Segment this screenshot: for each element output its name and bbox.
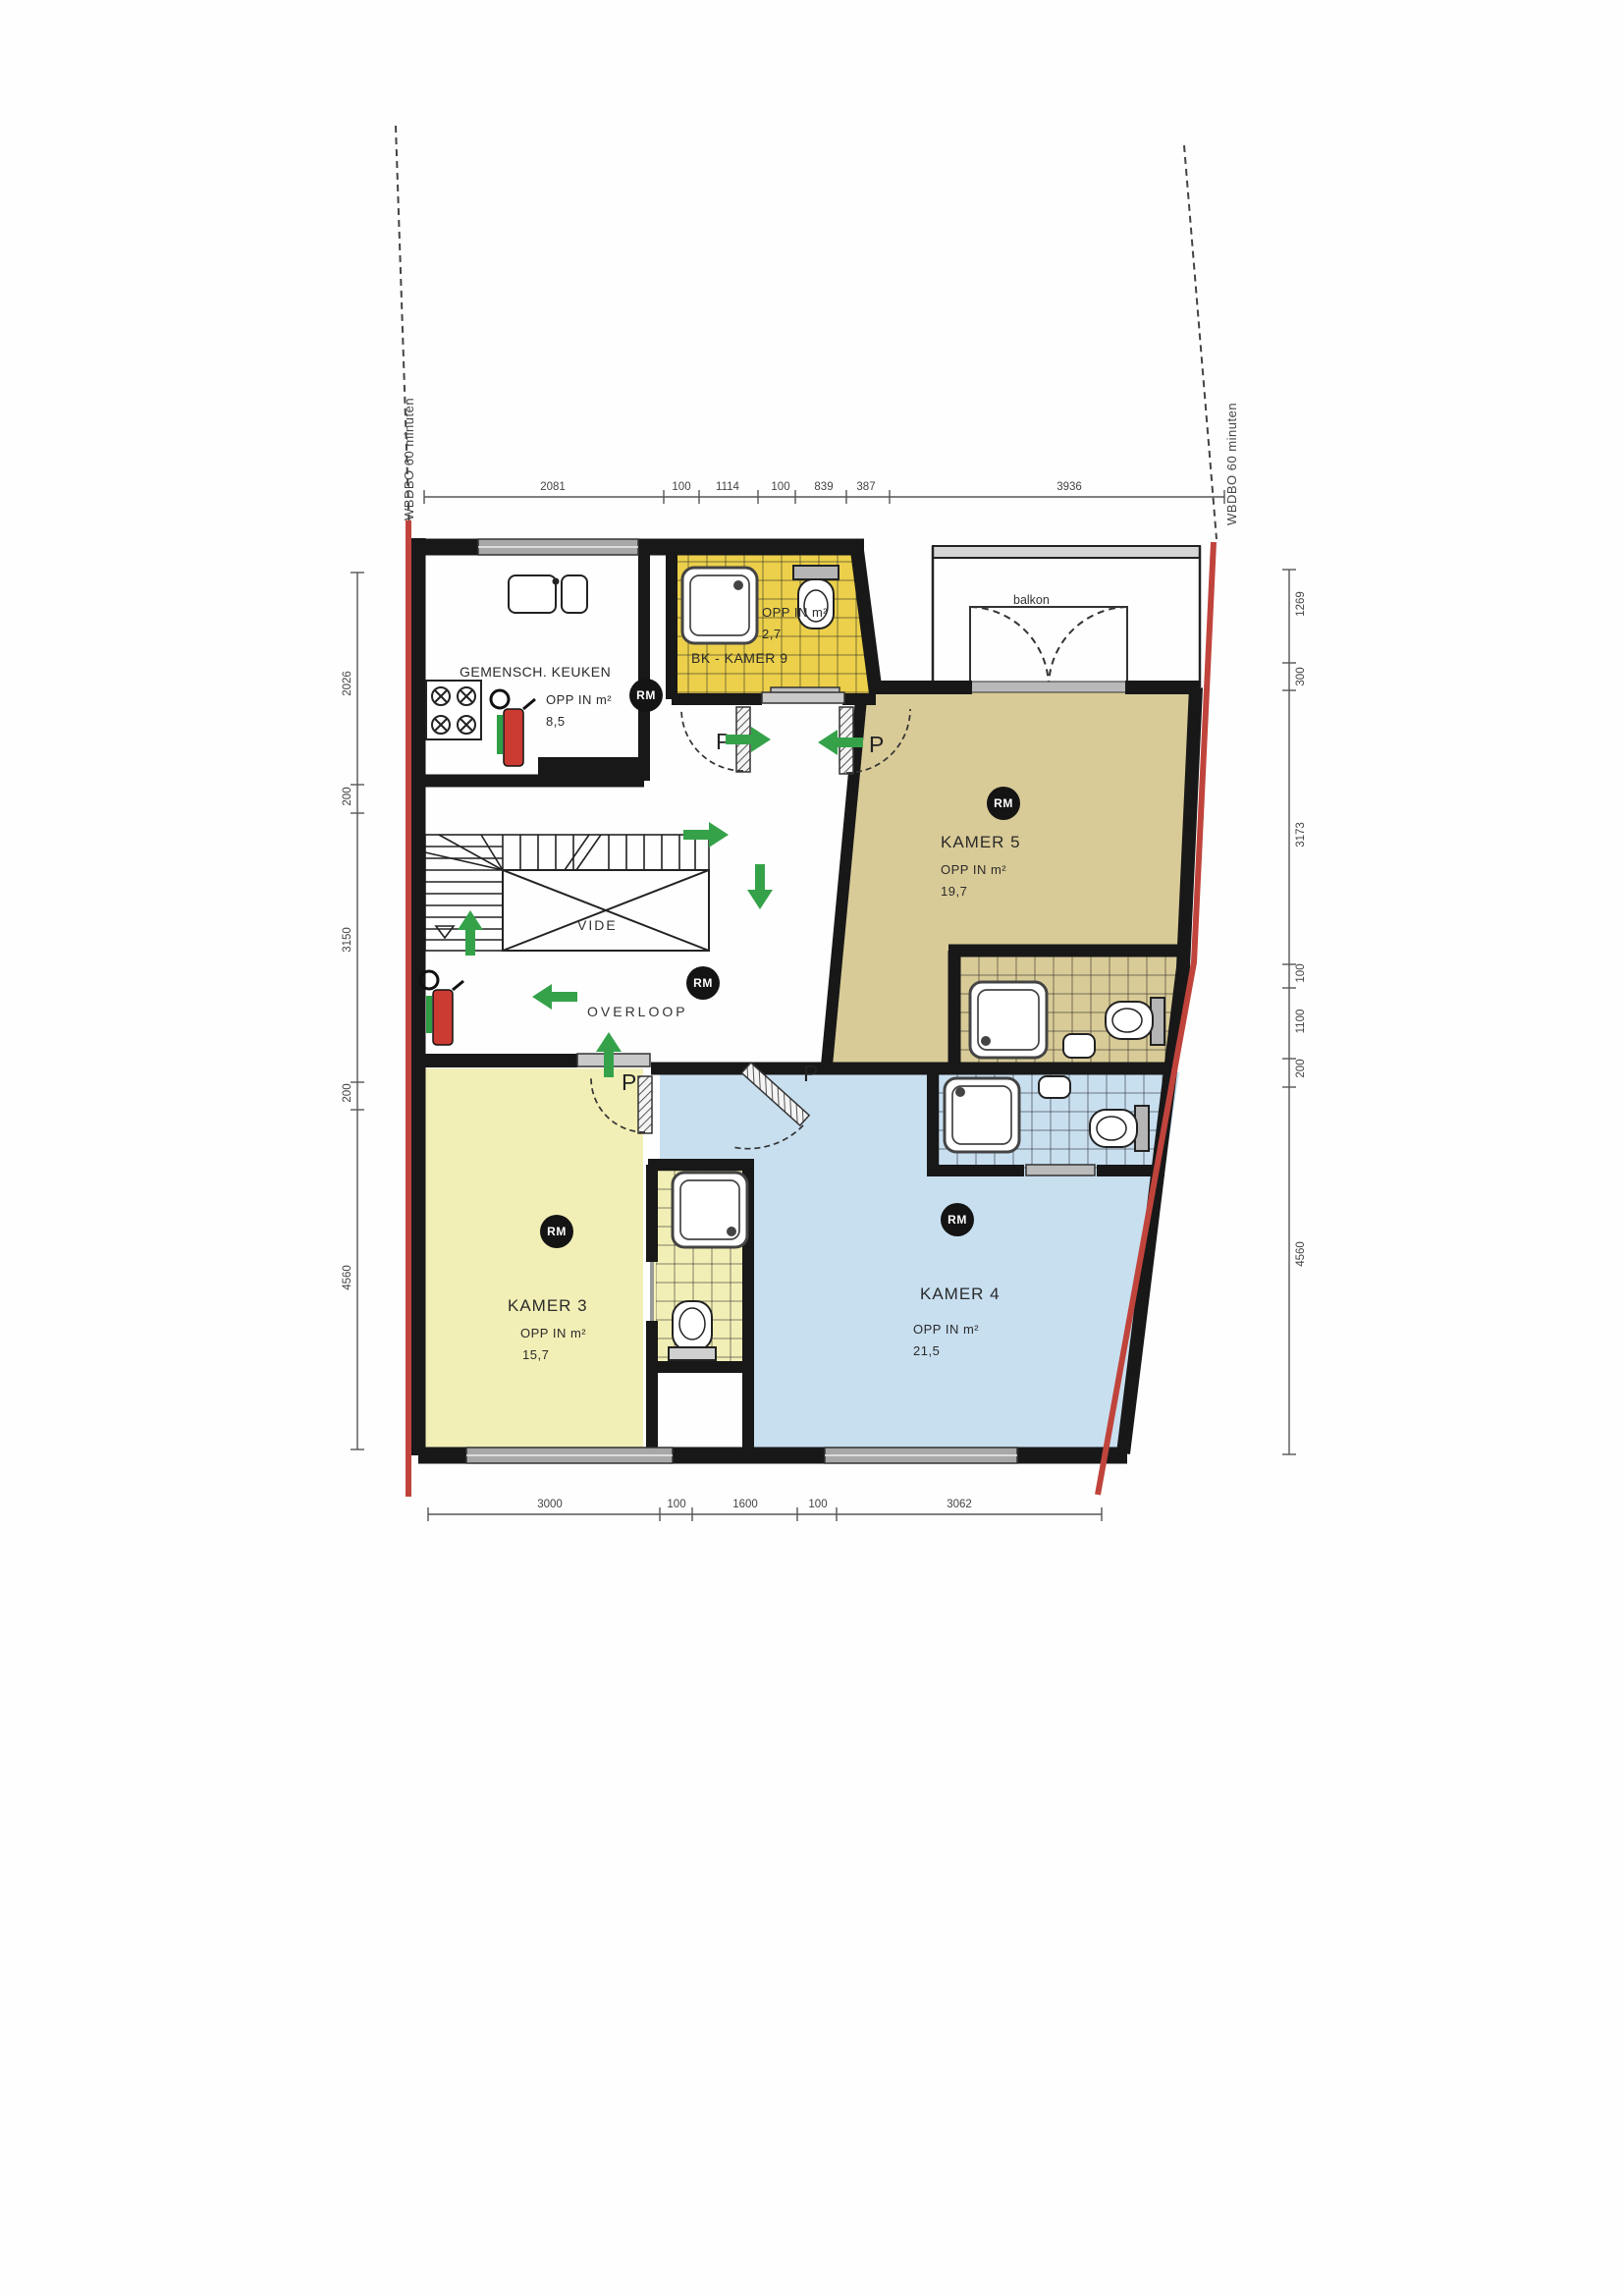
dim-top: 1114 [716, 481, 739, 493]
kitchen-name: GEMENSCH. KEUKEN [460, 664, 611, 680]
kamer3-opp: OPP IN m² [520, 1326, 586, 1340]
escape-route-arrow-icon [458, 910, 483, 956]
dim-top: 2081 [540, 481, 566, 493]
kitchen-area: 8,5 [546, 714, 566, 729]
dim-left: 3150 [342, 927, 353, 953]
dim-left: 200 [342, 1083, 353, 1102]
balcony [933, 546, 1200, 692]
kamer5-area: 19,7 [941, 884, 967, 899]
kamer5-opp: OPP IN m² [941, 862, 1006, 877]
escape-route-arrow-icon [726, 727, 771, 752]
smoke-detector-rm-icon: RM [987, 787, 1020, 820]
shower-icon [970, 982, 1047, 1058]
bk9-name: BK - KAMER 9 [691, 650, 788, 666]
kitchen-sink [509, 575, 587, 613]
kamer5-name: KAMER 5 [941, 833, 1021, 852]
shower-icon [682, 568, 757, 643]
escape-route-arrow-icon [683, 822, 729, 847]
floorplan-sheet: WBDBO 60 minuten WBDBO 60 minuten GEMENS… [0, 0, 1624, 2296]
vide-label: VIDE [577, 917, 618, 933]
basin-icon [1063, 1034, 1095, 1058]
smoke-detector-rm-icon: RM [629, 679, 663, 712]
escape-route-arrow-icon [818, 730, 863, 755]
toilet-icon [1106, 998, 1164, 1045]
dim-right: 4560 [1295, 1241, 1307, 1267]
door-p-marker: P [869, 732, 884, 758]
corridor-threshold [762, 692, 844, 703]
dim-top: 387 [856, 481, 875, 493]
dim-right: 1269 [1295, 591, 1307, 617]
toilet-icon [669, 1301, 716, 1360]
smoke-detector-rm-icon: RM [941, 1203, 974, 1236]
dim-right: 1100 [1295, 1010, 1307, 1034]
escape-route-arrow-icon [747, 864, 773, 909]
escape-route-arrow-icon [596, 1032, 622, 1077]
kitchen-opp: OPP IN m² [546, 692, 612, 707]
escape-route-arrow-icon [532, 984, 577, 1010]
door-p-marker: P [803, 1061, 818, 1087]
dim-top: 839 [814, 481, 833, 493]
kamer4-name: KAMER 4 [920, 1285, 1001, 1304]
fire-extinguisher-icon [491, 690, 535, 766]
door-p-marker: P [622, 1069, 636, 1096]
balcony-french-doors [970, 607, 1127, 687]
dim-left: 200 [342, 787, 353, 805]
dim-right: 100 [1295, 963, 1307, 982]
stove-icon [426, 681, 481, 739]
smoke-detector-rm-icon: RM [686, 966, 720, 1000]
basin-icon [1039, 1076, 1070, 1098]
dim-top: 100 [672, 481, 690, 493]
overloop-label: OVERLOOP [587, 1004, 688, 1019]
boundary-dashed-right [1184, 145, 1217, 539]
kamer4-bath-threshold [1026, 1165, 1095, 1175]
vide-opening [503, 870, 709, 951]
balcony-threshold [970, 682, 1127, 692]
door-leaf-kamer3 [638, 1076, 652, 1133]
toilet-icon [1090, 1106, 1149, 1151]
fire-extinguisher-icon [420, 971, 463, 1045]
smoke-detector-rm-icon: RM [540, 1215, 573, 1248]
dim-bottom: 3062 [947, 1499, 972, 1510]
balkon-label: balkon [1013, 593, 1050, 607]
dim-top: 100 [771, 481, 789, 493]
bk9-area: 2,7 [762, 627, 782, 641]
kamer3-area: 15,7 [522, 1347, 549, 1362]
dim-left: 2026 [342, 671, 353, 696]
dim-bottom: 3000 [537, 1499, 563, 1510]
dim-bottom: 100 [667, 1499, 685, 1510]
dim-bottom: 100 [808, 1499, 827, 1510]
kamer3-name: KAMER 3 [508, 1296, 588, 1316]
bk9-opp: OPP IN m² [762, 605, 828, 620]
dim-bottom: 1600 [732, 1499, 758, 1510]
floorplan-drawing [0, 0, 1624, 2296]
room-kamer3-fill [424, 1068, 643, 1453]
dim-right: 200 [1295, 1059, 1307, 1077]
dim-right: 3173 [1295, 822, 1307, 847]
dim-top: 3936 [1056, 481, 1082, 493]
dim-left: 4560 [342, 1265, 353, 1290]
kamer4-area: 21,5 [913, 1343, 940, 1358]
kamer4-opp: OPP IN m² [913, 1322, 979, 1337]
dim-right: 300 [1295, 667, 1307, 685]
shower-icon [673, 1173, 747, 1247]
shower-icon [945, 1078, 1019, 1152]
wbdbo-label-right: WBDBO 60 minuten [1224, 403, 1239, 525]
wbdbo-label-left: WBDBO 60 minuten [402, 398, 416, 520]
